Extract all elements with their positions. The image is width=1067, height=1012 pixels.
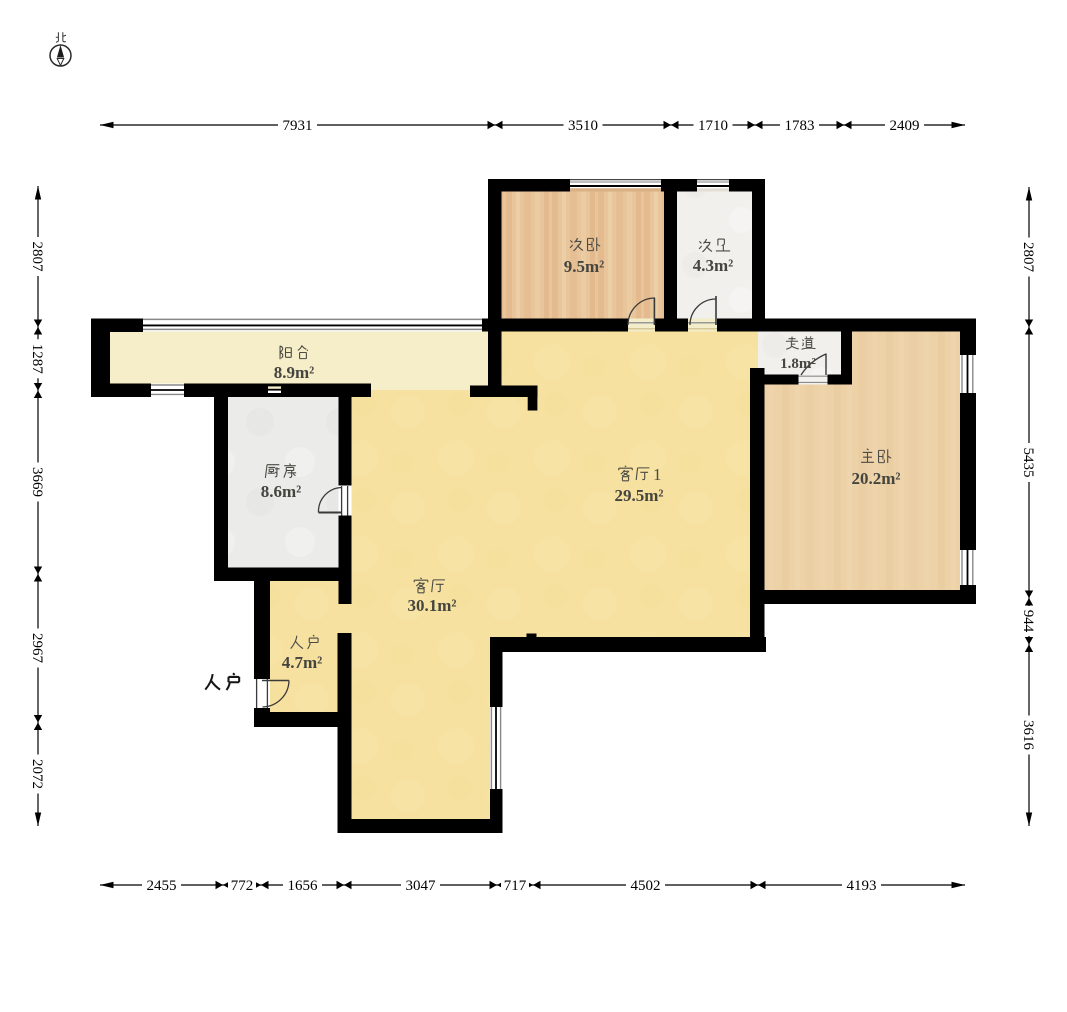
svg-text:2409: 2409 bbox=[890, 118, 920, 134]
svg-text:8.6m²: 8.6m² bbox=[261, 482, 302, 501]
svg-text:3669: 3669 bbox=[29, 467, 45, 497]
svg-text:1783: 1783 bbox=[785, 118, 815, 134]
svg-text:772: 772 bbox=[231, 878, 254, 894]
svg-text:1710: 1710 bbox=[698, 118, 728, 134]
svg-text:2072: 2072 bbox=[29, 759, 45, 789]
svg-text:1287: 1287 bbox=[29, 344, 45, 375]
svg-text:30.1m²: 30.1m² bbox=[407, 596, 456, 615]
svg-text:2807: 2807 bbox=[1020, 242, 1036, 273]
svg-text:944: 944 bbox=[1020, 610, 1036, 633]
svg-text:2807: 2807 bbox=[29, 242, 45, 273]
svg-text:7931: 7931 bbox=[283, 118, 313, 134]
svg-text:4193: 4193 bbox=[847, 878, 877, 894]
svg-text:3616: 3616 bbox=[1020, 720, 1036, 751]
svg-text:1: 1 bbox=[653, 465, 662, 484]
svg-text:2455: 2455 bbox=[147, 878, 177, 894]
svg-text:29.5m²: 29.5m² bbox=[614, 486, 663, 505]
svg-text:3047: 3047 bbox=[406, 878, 437, 894]
svg-text:4502: 4502 bbox=[631, 878, 661, 894]
svg-text:4.7m²: 4.7m² bbox=[282, 653, 323, 672]
svg-text:9.5m²: 9.5m² bbox=[564, 257, 605, 276]
svg-text:20.2m²: 20.2m² bbox=[851, 469, 900, 488]
svg-text:8.9m²: 8.9m² bbox=[274, 363, 315, 382]
svg-text:1.8m²: 1.8m² bbox=[780, 356, 816, 372]
svg-text:4.3m²: 4.3m² bbox=[693, 256, 734, 275]
svg-text:2967: 2967 bbox=[29, 633, 45, 664]
svg-text:1656: 1656 bbox=[288, 878, 319, 894]
svg-text:5435: 5435 bbox=[1020, 448, 1036, 478]
svg-text:3510: 3510 bbox=[568, 118, 598, 134]
svg-text:717: 717 bbox=[504, 878, 527, 894]
